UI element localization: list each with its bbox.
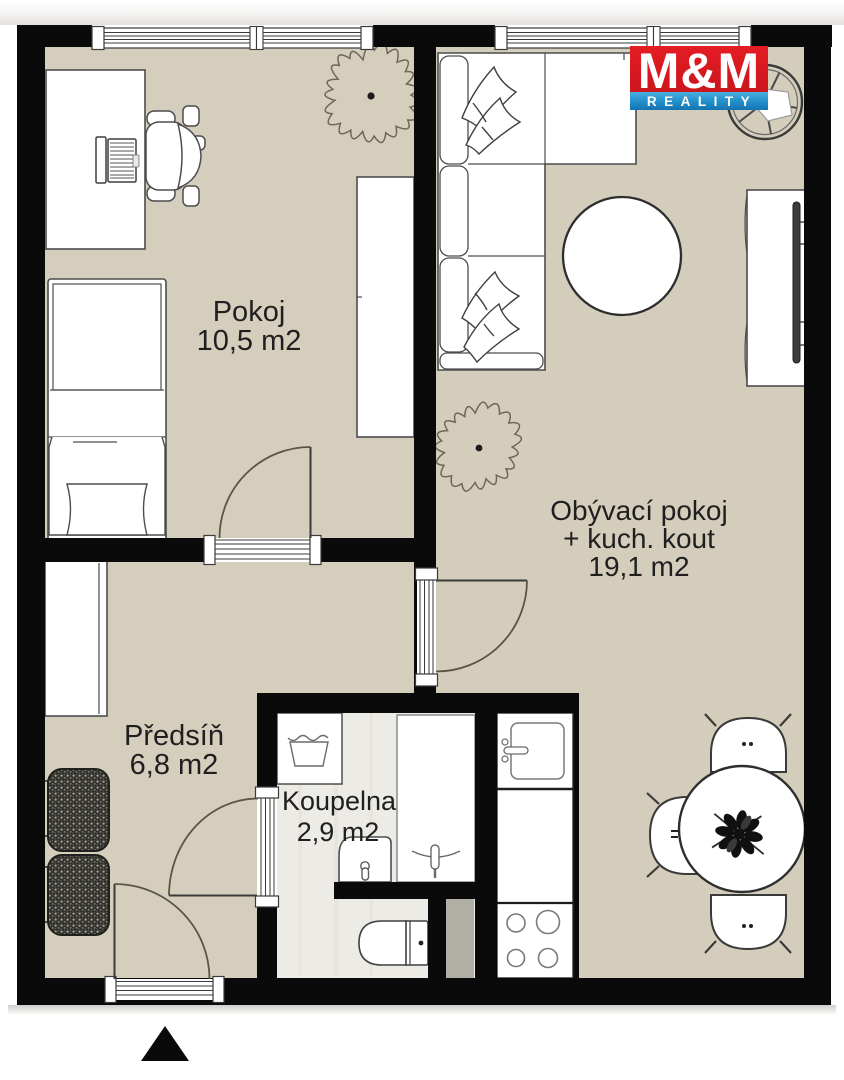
svg-text:REALITY: REALITY — [647, 94, 757, 109]
svg-text:Pokoj: Pokoj — [213, 296, 286, 328]
svg-text:10,5 m2: 10,5 m2 — [197, 325, 302, 357]
svg-text:Koupelna: Koupelna — [282, 786, 397, 816]
svg-text:Předsíň: Předsíň — [124, 720, 224, 752]
svg-text:19,1 m2: 19,1 m2 — [588, 551, 689, 582]
svg-text:Obývací pokoj: Obývací pokoj — [550, 495, 727, 526]
svg-text:M&M: M&M — [638, 43, 760, 99]
svg-text:6,8 m2: 6,8 m2 — [130, 749, 219, 781]
svg-text:2,9 m2: 2,9 m2 — [297, 817, 380, 847]
svg-text:+ kuch. kout: + kuch. kout — [563, 523, 715, 554]
